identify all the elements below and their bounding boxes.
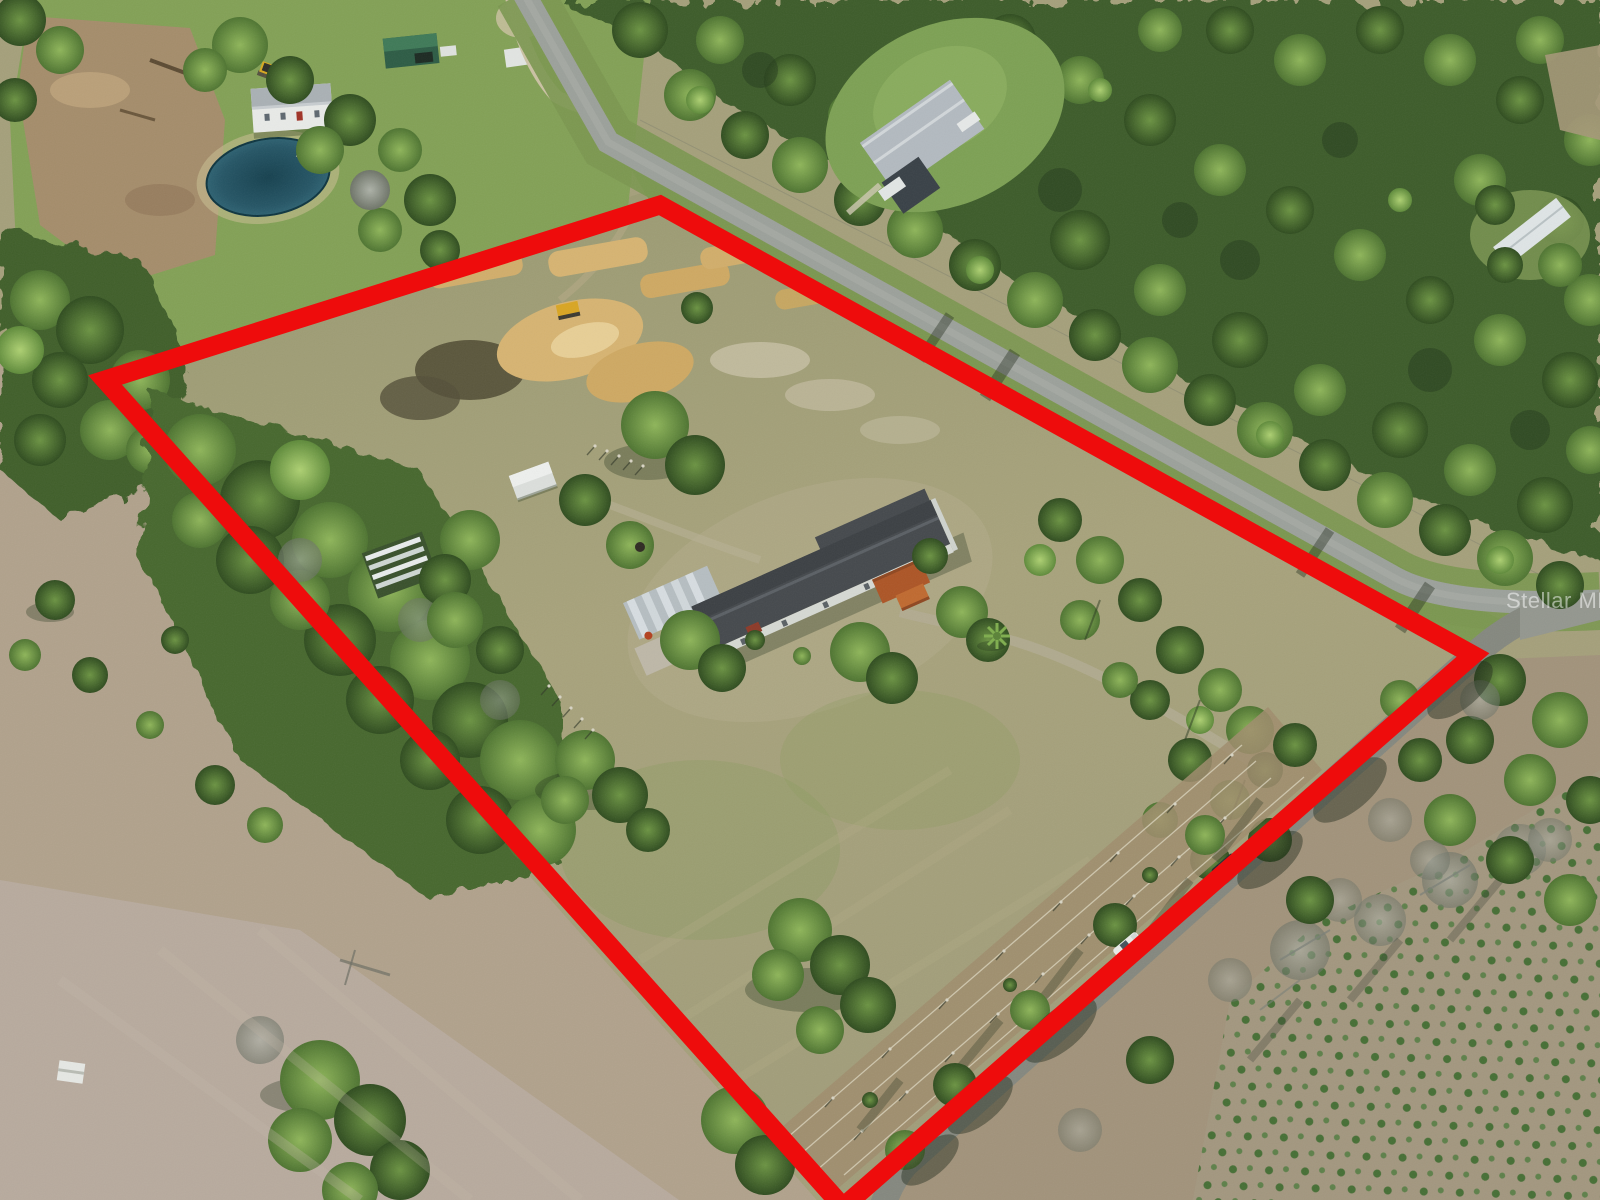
mls-watermark: Stellar MLS [1506,588,1600,613]
aerial-photo-canvas: Stellar MLS [0,0,1600,1200]
aerial-photo: Stellar MLS [0,0,1600,1200]
